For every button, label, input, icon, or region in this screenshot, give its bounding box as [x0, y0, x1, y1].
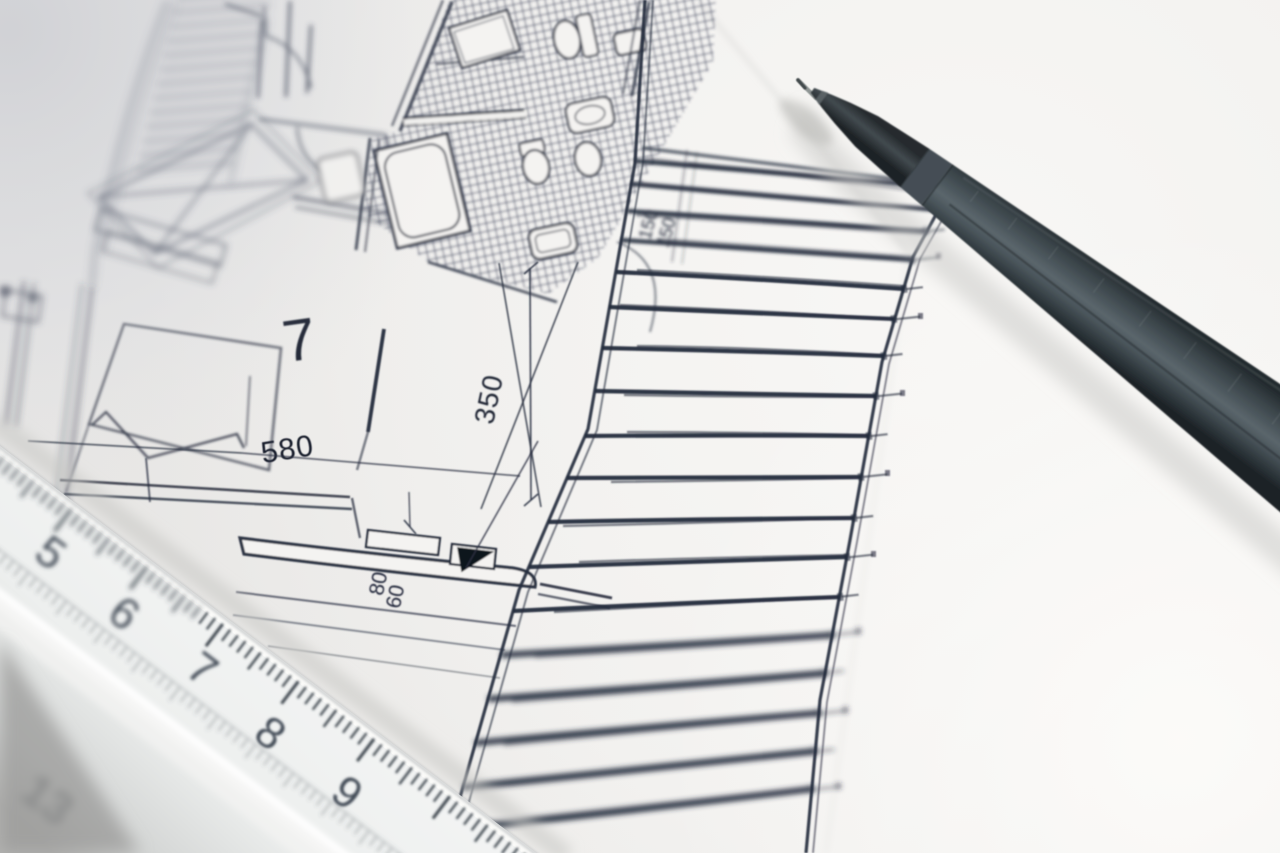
svg-text:60: 60	[382, 583, 409, 611]
